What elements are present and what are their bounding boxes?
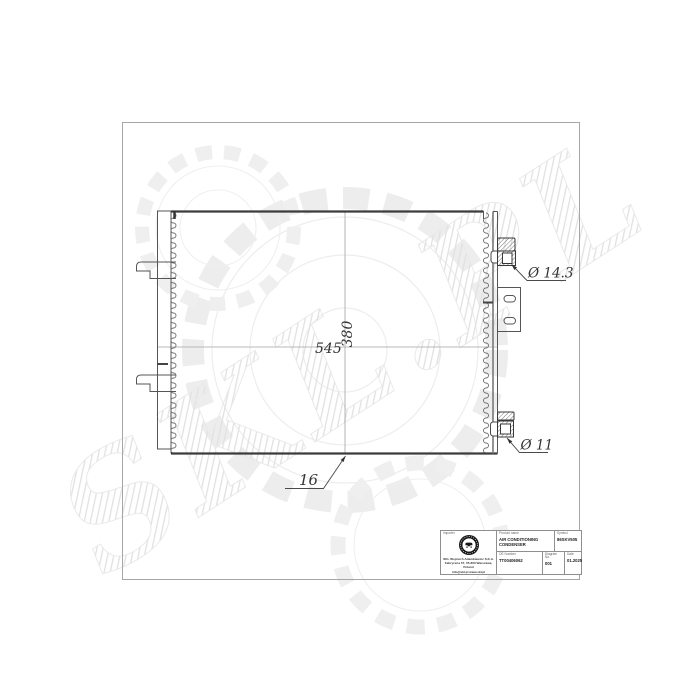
symbol-label: Symbol bbox=[557, 532, 579, 535]
title-block-fields: Product name AIR CONDITIONING CONDENSER … bbox=[497, 531, 581, 574]
oe-number-label: OE Number bbox=[499, 553, 540, 556]
dim-outlet-diameter: Ø 11 bbox=[520, 438, 554, 454]
date-cell: Date 01.2025 bbox=[564, 552, 581, 574]
brand-logo-icon bbox=[458, 534, 480, 556]
product-name-value: AIR CONDITIONING CONDENSER bbox=[499, 538, 552, 547]
symbol-cell: Symbol 86SKV505 bbox=[554, 531, 581, 551]
date-value: 01.2025 bbox=[567, 559, 579, 564]
diagram-no-cell: Diagram No. 001 bbox=[542, 552, 564, 574]
technical-drawing: SKL.PL bbox=[0, 0, 700, 700]
oe-number-cell: OE Number TT00406062 bbox=[497, 552, 542, 574]
dim-core-height: 380 bbox=[340, 321, 356, 348]
date-label: Date bbox=[567, 553, 579, 556]
diagram-no-value: 001 bbox=[545, 562, 562, 567]
title-block-row-2: OE Number TT00406062 Diagram No. 001 Dat… bbox=[497, 552, 581, 574]
title-block: Importer SKL Wojciech Adamkiewicz S.K.A.… bbox=[440, 530, 582, 575]
leader-outlet: Ø 11 bbox=[507, 438, 553, 454]
dim-inlet-diameter: Ø 14.3 bbox=[527, 266, 573, 282]
title-block-row-1: Product name AIR CONDITIONING CONDENSER … bbox=[497, 531, 581, 552]
importer-label: Importer bbox=[443, 532, 455, 535]
drawing-sheet: SKL.PL bbox=[0, 0, 700, 700]
company-line-3: info@skl.pl www.skl.pl bbox=[441, 570, 496, 574]
product-name-cell: Product name AIR CONDITIONING CONDENSER bbox=[497, 531, 554, 551]
dim-core-width: 545 bbox=[315, 341, 342, 357]
title-block-importer-cell: Importer SKL Wojciech Adamkiewicz S.K.A.… bbox=[441, 531, 497, 574]
dim-core-depth: 16 bbox=[299, 471, 319, 489]
symbol-value: 86SKV505 bbox=[557, 538, 579, 543]
oe-number-value: TT00406062 bbox=[499, 559, 540, 564]
company-line-2: Fabryczna 57, 05-800 Warszawa, Poland bbox=[441, 561, 496, 569]
diagram-no-label: Diagram No. bbox=[545, 553, 562, 559]
product-name-label: Product name bbox=[499, 532, 552, 535]
importer-address: SKL Wojciech Adamkiewicz S.K.A. Fabryczn… bbox=[441, 557, 496, 574]
